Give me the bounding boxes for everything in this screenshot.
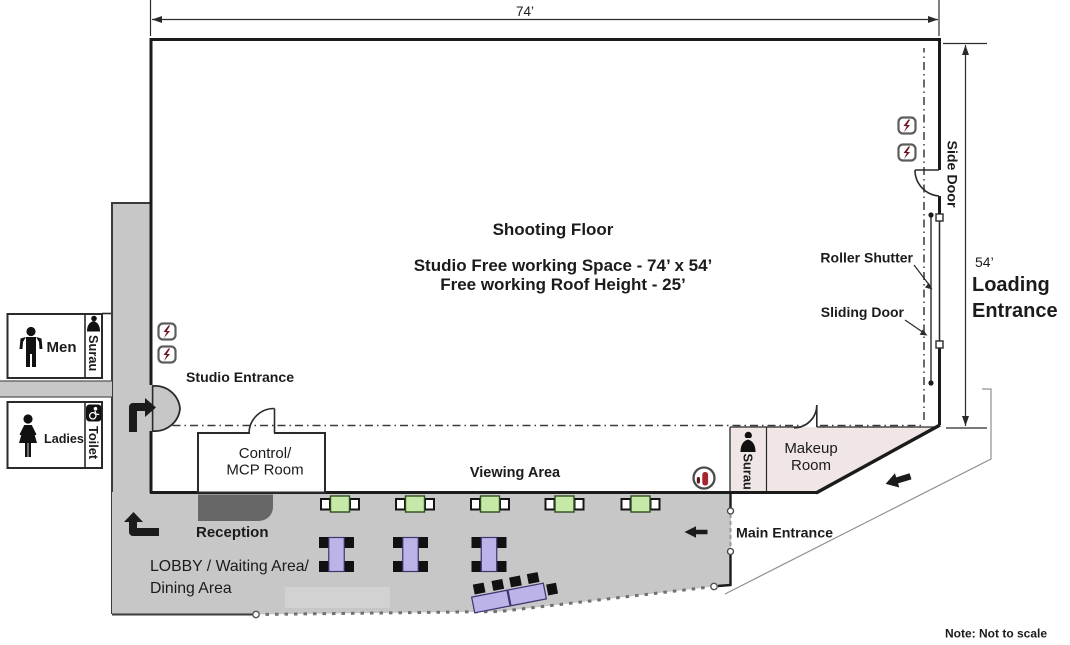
svg-text:Roller Shutter: Roller Shutter: [820, 250, 913, 266]
svg-text:Free working Roof Height - 25’: Free working Roof Height - 25’: [440, 275, 686, 294]
svg-text:Studio Free working Space - 74: Studio Free working Space - 74’ x 54’: [414, 256, 713, 275]
svg-text:Toilet: Toilet: [86, 426, 101, 460]
svg-text:MCP Room: MCP Room: [226, 462, 303, 479]
svg-text:Side Door: Side Door: [944, 140, 960, 207]
svg-text:Shooting Floor: Shooting Floor: [493, 220, 614, 239]
svg-text:Loading: Loading: [972, 274, 1050, 296]
svg-text:Reception: Reception: [196, 524, 269, 541]
svg-text:Surau: Surau: [741, 454, 756, 490]
svg-text:Men: Men: [47, 339, 77, 356]
svg-text:Room: Room: [791, 457, 831, 474]
svg-text:Entrance: Entrance: [972, 300, 1058, 322]
svg-text:Ladies: Ladies: [44, 432, 84, 446]
svg-text:Surau: Surau: [86, 335, 101, 371]
svg-text:Sliding Door: Sliding Door: [821, 304, 905, 320]
svg-text:Note: Not to scale: Note: Not to scale: [945, 627, 1047, 641]
svg-text:Main Entrance: Main Entrance: [736, 526, 833, 542]
svg-text:Studio Entrance: Studio Entrance: [186, 369, 294, 385]
svg-text:54’: 54’: [975, 254, 994, 270]
svg-text:Viewing Area: Viewing Area: [470, 465, 561, 481]
svg-text:Control/: Control/: [239, 445, 292, 462]
svg-text:74’: 74’: [516, 4, 534, 19]
svg-text:LOBBY / Waiting Area/: LOBBY / Waiting Area/: [150, 558, 310, 575]
svg-text:Dining Area: Dining Area: [150, 580, 232, 597]
svg-text:Makeup: Makeup: [784, 440, 837, 457]
